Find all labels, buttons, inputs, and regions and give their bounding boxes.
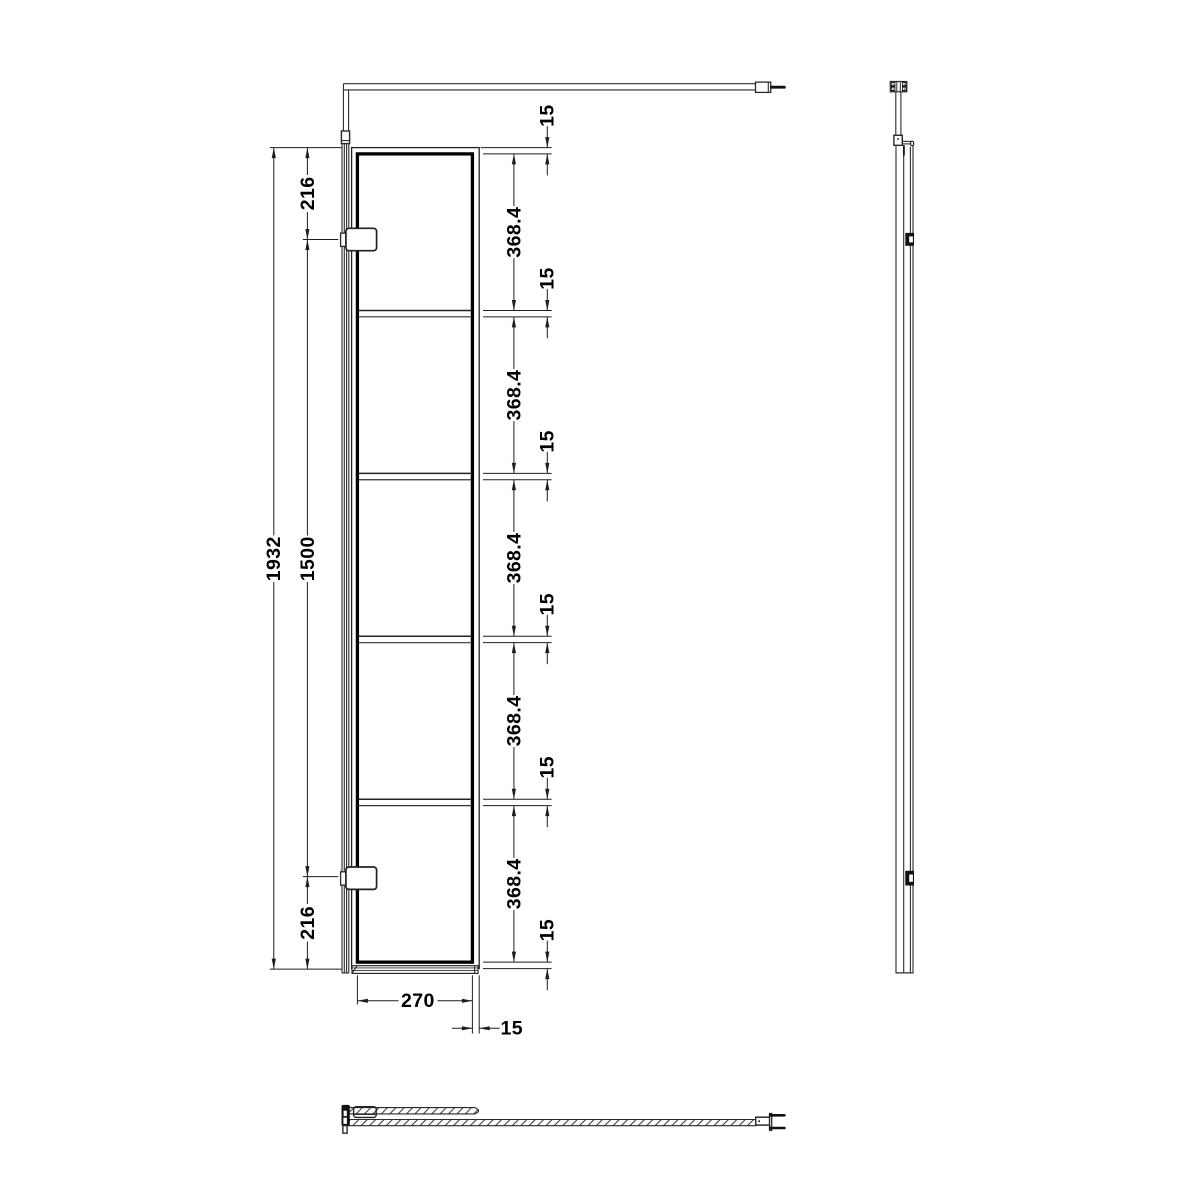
svg-text:15: 15 (537, 104, 559, 127)
svg-text:216: 216 (297, 177, 319, 211)
svg-text:368.4: 368.4 (503, 858, 525, 909)
svg-text:270: 270 (401, 990, 435, 1012)
svg-text:1932: 1932 (263, 536, 285, 581)
svg-text:15: 15 (537, 267, 559, 290)
svg-text:15: 15 (537, 919, 559, 942)
svg-text:1500: 1500 (297, 536, 319, 581)
svg-text:368.4: 368.4 (503, 533, 525, 584)
svg-text:15: 15 (501, 1017, 524, 1039)
svg-text:15: 15 (537, 756, 559, 779)
svg-text:216: 216 (297, 906, 319, 940)
svg-text:368.4: 368.4 (503, 370, 525, 421)
svg-text:368.4: 368.4 (503, 207, 525, 258)
svg-text:368.4: 368.4 (503, 696, 525, 747)
svg-text:15: 15 (537, 593, 559, 616)
svg-text:15: 15 (537, 430, 559, 453)
